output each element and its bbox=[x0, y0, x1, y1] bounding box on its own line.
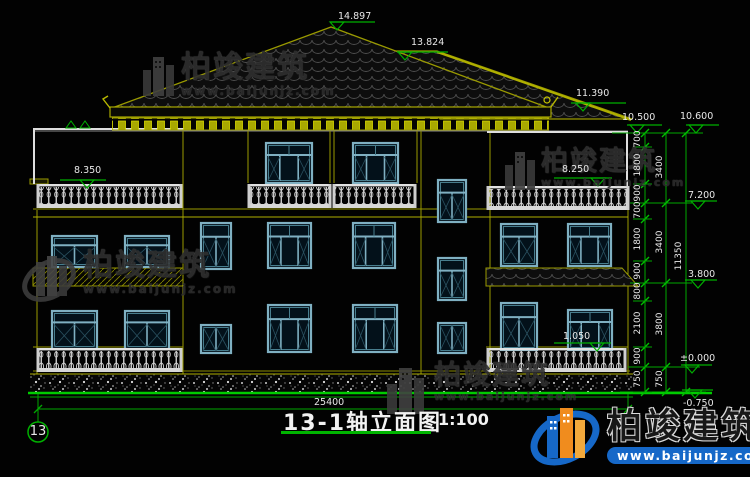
railing bbox=[333, 184, 417, 208]
dentil-row bbox=[112, 118, 549, 130]
railing bbox=[37, 348, 183, 372]
railing bbox=[37, 184, 183, 208]
brand-logo-icon bbox=[527, 400, 603, 474]
brand-logo-title: 柏竣建筑 bbox=[607, 410, 750, 445]
window bbox=[568, 310, 612, 350]
chain-segment-dim: 1800 bbox=[633, 150, 643, 180]
railing bbox=[248, 184, 332, 208]
window bbox=[268, 223, 311, 268]
level-label-parapet_left: 10.500 bbox=[622, 112, 655, 123]
railing bbox=[487, 186, 630, 210]
level-label-railing_bottom: 1.050 bbox=[563, 331, 590, 342]
level-label-floor2: 3.800 bbox=[688, 269, 715, 280]
window bbox=[125, 236, 169, 267]
chain-segment-dim: 750 bbox=[633, 364, 643, 394]
window bbox=[353, 143, 398, 183]
chain-segment-dim: 1800 bbox=[633, 224, 643, 254]
level-label-terrace_right: 8.250 bbox=[562, 164, 589, 175]
chain-floor-dim: 3800 bbox=[655, 309, 665, 339]
windows bbox=[52, 143, 612, 353]
window bbox=[268, 305, 311, 352]
window bbox=[438, 323, 466, 353]
chain-segment-dim: 700 bbox=[633, 195, 643, 225]
railing bbox=[487, 348, 627, 372]
window bbox=[52, 236, 97, 267]
window bbox=[201, 325, 231, 353]
chain-floor-dim: 3400 bbox=[655, 152, 665, 182]
axis-bubble-label: 13 bbox=[27, 424, 49, 439]
level-label-parapet_right: 10.600 bbox=[680, 111, 713, 122]
window bbox=[201, 223, 231, 269]
window bbox=[125, 311, 169, 349]
eave-fascia bbox=[110, 107, 551, 117]
window bbox=[501, 303, 537, 350]
level-label-site: -0.750 bbox=[683, 398, 714, 409]
chain-floor-dim: 750 bbox=[655, 364, 665, 394]
window bbox=[266, 143, 312, 183]
cad-elevation-canvas: 柏竣建筑 www.baijunjz.com 柏竣建筑 www.baijunjz.… bbox=[0, 0, 750, 477]
window bbox=[501, 224, 537, 266]
level-label-ridge_secondary: 13.824 bbox=[411, 37, 444, 48]
level-label-ridge_main: 14.897 bbox=[338, 11, 371, 22]
level-label-eave: 11.390 bbox=[576, 88, 609, 99]
chain-total-dim: 11350 bbox=[674, 241, 684, 271]
title-underline bbox=[281, 431, 431, 434]
window bbox=[353, 305, 397, 352]
level-label-ground: ±0.000 bbox=[680, 353, 715, 364]
level-label-terrace_left: 8.350 bbox=[74, 165, 101, 176]
window bbox=[568, 224, 611, 266]
chain-segment-dim: 2100 bbox=[633, 308, 643, 338]
window bbox=[52, 311, 97, 349]
brand-logo: 柏竣建筑 www.baijunjz.com bbox=[527, 400, 750, 474]
window bbox=[438, 258, 466, 300]
level-label-floor3: 7.200 bbox=[688, 190, 715, 201]
overall-width-dim: 25400 bbox=[314, 397, 344, 408]
brand-logo-url: www.baijunjz.com bbox=[607, 447, 750, 464]
window bbox=[438, 180, 466, 222]
drawing-scale: 1:100 bbox=[438, 410, 489, 429]
chain-segment-dim: 800 bbox=[633, 276, 643, 306]
roof bbox=[103, 27, 632, 130]
window bbox=[353, 223, 395, 268]
chain-floor-dim: 3400 bbox=[655, 227, 665, 257]
